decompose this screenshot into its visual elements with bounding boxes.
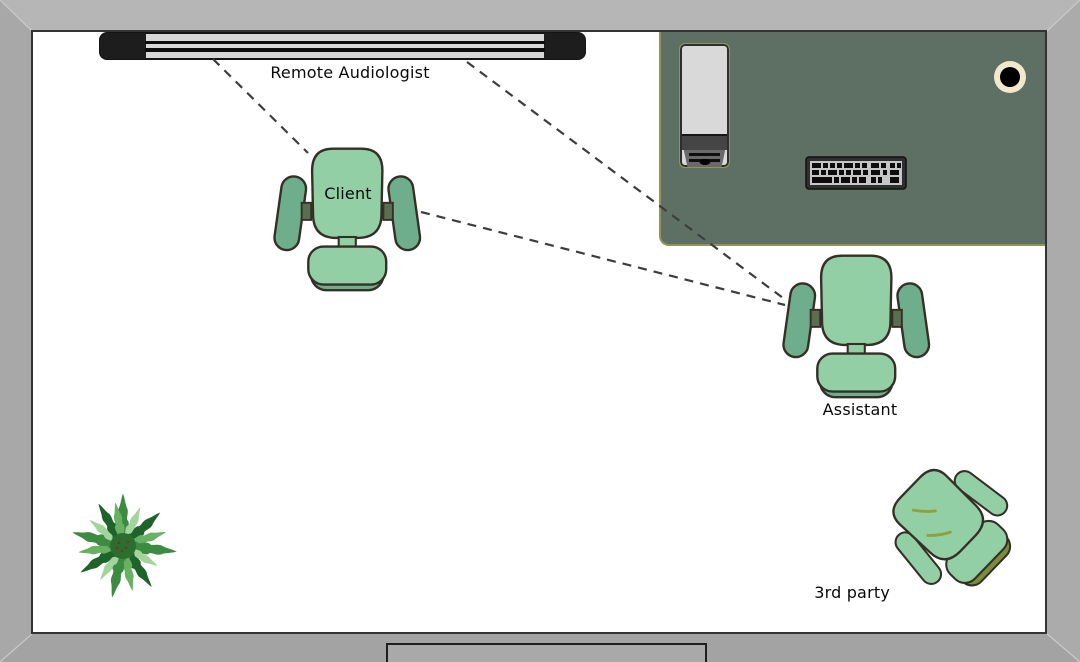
client-label: Client [300, 184, 396, 204]
monitor-button [699, 159, 710, 165]
screen-left-cap [100, 33, 146, 59]
room-diagram: Remote Audiologist Client Assistant 3rd … [0, 0, 1080, 662]
mug [994, 61, 1026, 93]
monitor [679, 43, 730, 168]
door-table [386, 643, 707, 662]
screen-right-cap [544, 33, 585, 59]
remote-audiologist-label: Remote Audiologist [265, 63, 435, 83]
screen-stripe [145, 48, 545, 52]
screen-stripe [145, 41, 545, 44]
third-party-label: 3rd party [790, 583, 890, 603]
monitor-base-band [682, 134, 727, 150]
desk [659, 32, 1045, 246]
keyboard [805, 156, 907, 190]
assistant-label: Assistant [800, 400, 920, 420]
wall-screen [99, 32, 586, 60]
